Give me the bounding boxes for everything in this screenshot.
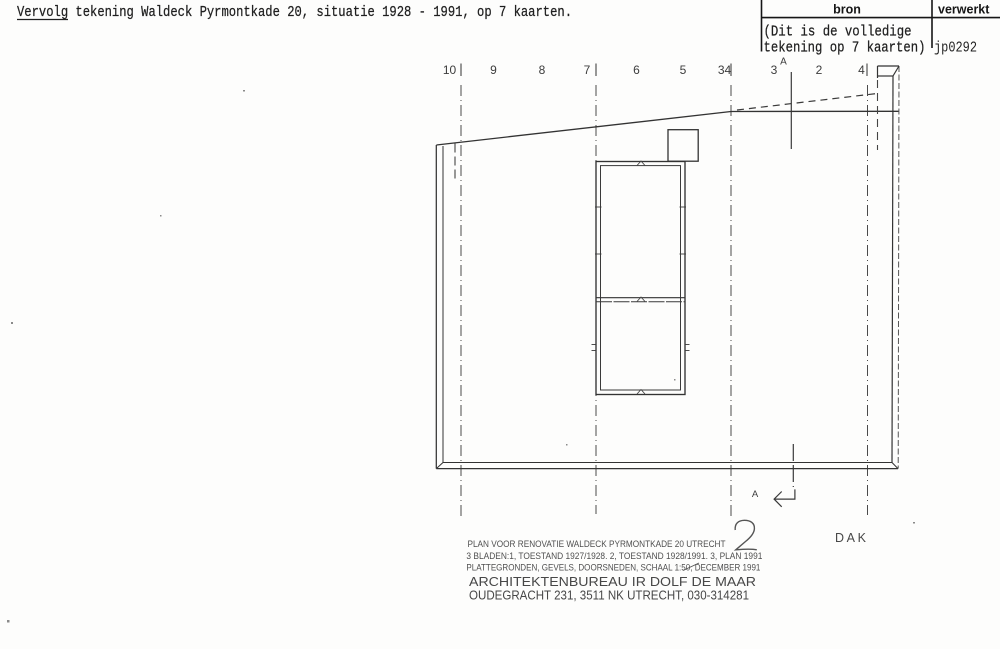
svg-text:A: A: [752, 489, 759, 500]
svg-text:DAK: DAK: [835, 531, 869, 545]
svg-text:4: 4: [858, 63, 865, 77]
svg-text:8: 8: [539, 63, 546, 77]
svg-text:5: 5: [680, 63, 687, 77]
svg-text:34: 34: [718, 63, 732, 77]
svg-text:PLAN VOOR RENOVATIE WALDECK PY: PLAN VOOR RENOVATIE WALDECK PYRMONTKADE …: [468, 539, 726, 549]
svg-text:2: 2: [816, 63, 823, 77]
svg-text:jp0292: jp0292: [934, 40, 977, 57]
svg-text:3 BLADEN:1, TOESTAND 1927/1928: 3 BLADEN:1, TOESTAND 1927/1928. 2, TOEST…: [466, 551, 762, 561]
svg-text:A: A: [780, 57, 787, 68]
svg-text:9: 9: [490, 63, 497, 77]
svg-text:3: 3: [771, 63, 778, 77]
svg-text:tekening op 7 kaarten): tekening op 7 kaarten): [764, 40, 926, 57]
svg-text:(Dit is de volledige: (Dit is de volledige: [764, 24, 912, 41]
svg-text:OUDEGRACHT 231, 3511 NK UTRECH: OUDEGRACHT 231, 3511 NK UTRECHT, 030-314…: [469, 588, 749, 603]
svg-text:6: 6: [633, 63, 640, 77]
svg-text:bron: bron: [833, 3, 861, 17]
svg-text:10: 10: [443, 63, 457, 77]
svg-text:7: 7: [584, 63, 591, 77]
svg-text:Vervolg tekening Waldeck Pyrmo: Vervolg tekening Waldeck Pyrmontkade 20,…: [17, 3, 572, 21]
svg-text:PLATTEGRONDEN, GEVELS, DOORSNE: PLATTEGRONDEN, GEVELS, DOORSNEDEN, SCHAA…: [466, 562, 760, 572]
svg-text:verwerkt: verwerkt: [938, 3, 990, 17]
